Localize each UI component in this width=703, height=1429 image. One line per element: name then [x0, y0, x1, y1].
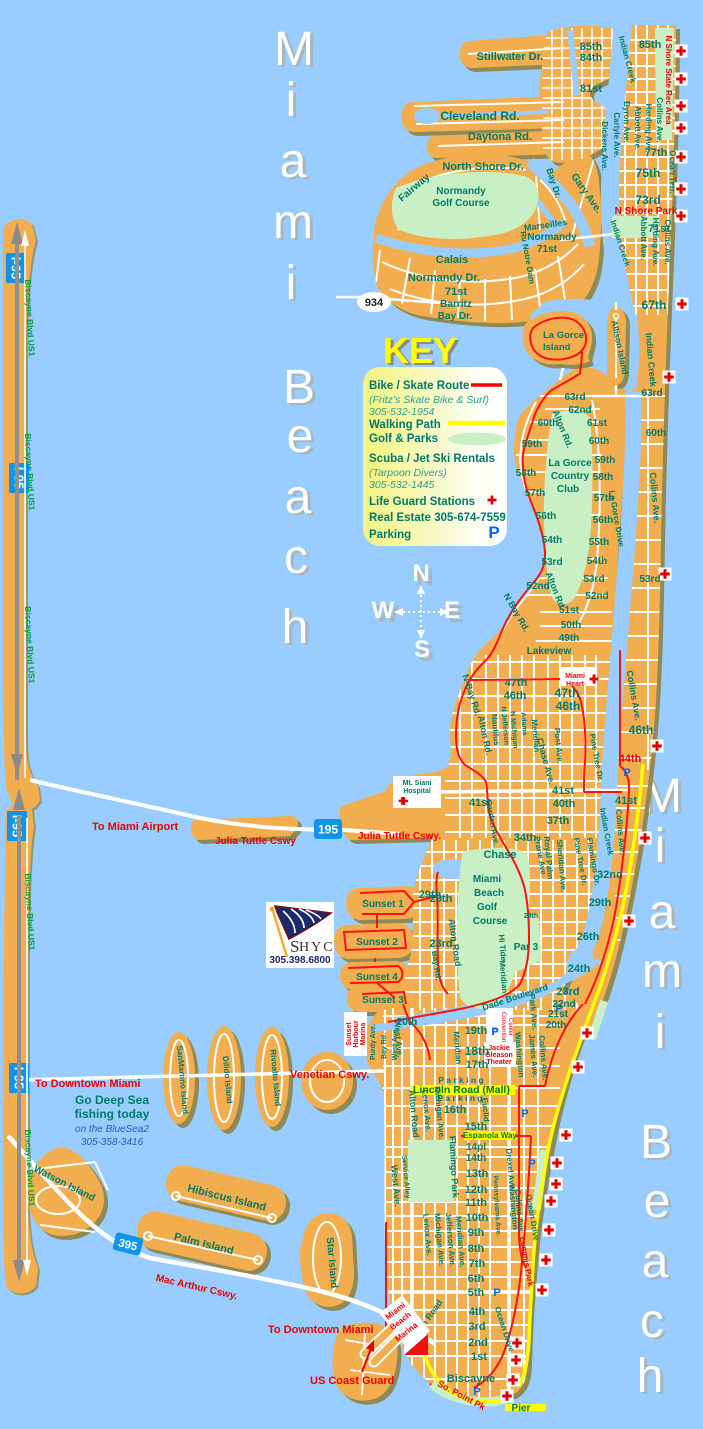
svg-text:h: h: [637, 1350, 664, 1403]
svg-text:S: S: [290, 937, 299, 956]
svg-text:c: c: [640, 1295, 664, 1348]
svg-text:Real Estate 305-674-7559: Real Estate 305-674-7559: [369, 512, 506, 524]
svg-text:21st: 21st: [548, 1009, 569, 1020]
svg-text:Normandy Dr.: Normandy Dr.: [408, 272, 480, 284]
svg-text:P: P: [491, 1026, 498, 1038]
svg-text:4th: 4th: [469, 1306, 486, 1318]
svg-text:41st: 41st: [552, 785, 574, 797]
svg-text:24th: 24th: [568, 963, 591, 975]
svg-text:Mt. Siani: Mt. Siani: [403, 780, 432, 787]
svg-text:Collins Ave.: Collins Ave.: [655, 97, 664, 142]
svg-text:53rd: 53rd: [583, 574, 604, 585]
svg-text:m: m: [273, 196, 313, 249]
svg-text:7th: 7th: [469, 1258, 486, 1270]
svg-text:W: W: [372, 597, 395, 624]
svg-text:5th: 5th: [468, 1287, 485, 1299]
svg-text:54th: 54th: [542, 535, 563, 546]
svg-text:2nd: 2nd: [468, 1337, 488, 1349]
svg-text:59th: 59th: [595, 455, 616, 466]
svg-text:8th: 8th: [468, 1243, 485, 1255]
svg-text:56th: 56th: [536, 511, 557, 522]
svg-text:81st: 81st: [580, 83, 602, 95]
svg-text:Pier: Pier: [512, 1403, 531, 1414]
svg-text:Beach: Beach: [474, 888, 504, 899]
svg-text:85th: 85th: [639, 39, 662, 51]
svg-text:La Gorce: La Gorce: [543, 330, 584, 341]
svg-text:41st: 41st: [615, 795, 637, 807]
svg-text:Scuba / Jet Ski Rentals: Scuba / Jet Ski Rentals: [369, 453, 495, 465]
svg-text:11th: 11th: [465, 1197, 487, 1209]
svg-text:Normandy: Normandy: [436, 186, 486, 197]
svg-text:19th: 19th: [465, 1025, 488, 1037]
svg-text:B: B: [283, 361, 315, 414]
svg-text:63rd: 63rd: [564, 392, 585, 403]
svg-text:Abbott Ave.: Abbott Ave.: [639, 216, 648, 260]
svg-text:Barritz: Barritz: [440, 299, 472, 310]
svg-text:49th: 49th: [559, 633, 580, 644]
svg-text:37th: 37th: [547, 815, 570, 827]
svg-text:i: i: [286, 74, 297, 127]
svg-text:To Downtown Miami: To Downtown Miami: [268, 1324, 374, 1336]
svg-text:Julia Tuttle Cswy: Julia Tuttle Cswy: [215, 836, 296, 847]
svg-text:47th: 47th: [555, 686, 580, 700]
svg-text:c: c: [284, 531, 308, 584]
svg-text:71st: 71st: [445, 286, 467, 298]
svg-text:305-358-3416: 305-358-3416: [81, 1137, 144, 1148]
svg-text:Bay Dr.: Bay Dr.: [438, 311, 473, 322]
svg-text:50th: 50th: [561, 620, 582, 631]
svg-text:e: e: [287, 410, 314, 463]
svg-text:67th: 67th: [642, 298, 667, 312]
svg-text:a: a: [642, 1235, 669, 1288]
svg-text:e: e: [644, 1175, 671, 1228]
svg-text:P: P: [488, 523, 499, 542]
svg-text:Go Deep Sea: Go Deep Sea: [75, 1093, 149, 1107]
svg-text:Lakeview: Lakeview: [527, 646, 572, 657]
svg-text:Hospital: Hospital: [403, 788, 431, 795]
svg-text:Club: Club: [557, 484, 579, 495]
svg-text:Ocean Terr.: Ocean Terr.: [668, 150, 677, 193]
svg-text:Purdy Ave.: Purdy Ave.: [370, 1024, 377, 1060]
svg-text:934: 934: [365, 297, 384, 309]
svg-text:Stillwater Dr.: Stillwater Dr.: [477, 51, 544, 63]
svg-text:i: i: [286, 257, 297, 310]
svg-text:13th: 13th: [466, 1168, 489, 1180]
svg-text:71st: 71st: [537, 244, 558, 255]
svg-text:54th: 54th: [587, 556, 608, 567]
svg-text:52nd: 52nd: [585, 591, 608, 602]
svg-text:3rd: 3rd: [468, 1321, 485, 1333]
svg-text:P: P: [493, 1287, 500, 1299]
svg-text:P: P: [521, 1108, 528, 1120]
svg-text:Par 3: Par 3: [514, 942, 539, 953]
svg-text:a: a: [649, 886, 676, 939]
svg-text:53rd: 53rd: [639, 574, 660, 585]
svg-text:Byron Ave.: Byron Ave.: [622, 101, 631, 143]
svg-text:Harding Ave.: Harding Ave.: [651, 218, 660, 267]
svg-text:Normandy: Normandy: [527, 232, 577, 243]
svg-text:14th: 14th: [466, 1153, 487, 1164]
svg-text:Jackie: Jackie: [488, 1045, 510, 1052]
svg-text:46th: 46th: [629, 723, 654, 737]
svg-text:29th: 29th: [419, 889, 442, 901]
svg-text:12th: 12th: [465, 1184, 488, 1196]
svg-text:56th: 56th: [593, 515, 614, 526]
svg-text:Island: Island: [543, 342, 571, 353]
svg-text:Sunset: Sunset: [346, 1022, 353, 1046]
svg-text:Bike / Skate Route: Bike / Skate Route: [369, 380, 469, 392]
svg-text:Julia Tuttle Cswy.: Julia Tuttle Cswy.: [358, 831, 441, 842]
svg-text:Sunset 3: Sunset 3: [362, 995, 404, 1006]
svg-text:Dickens Ave.: Dickens Ave.: [600, 121, 609, 170]
svg-text:84th: 84th: [580, 52, 603, 64]
svg-text:23rd: 23rd: [429, 938, 452, 950]
svg-text:HYC: HYC: [299, 940, 335, 955]
svg-text:Miami: Miami: [565, 673, 585, 680]
svg-text:60th: 60th: [589, 436, 610, 447]
svg-text:52nd: 52nd: [526, 581, 549, 592]
svg-text:Convention: Convention: [500, 1012, 506, 1042]
svg-text:Espanola Way: Espanola Way: [463, 1131, 517, 1140]
svg-text:73rd: 73rd: [635, 193, 660, 207]
svg-text:P: P: [528, 1158, 535, 1170]
svg-text:195: 195: [318, 823, 338, 837]
svg-text:10th: 10th: [466, 1212, 489, 1224]
svg-text:17th: 17th: [466, 1059, 489, 1071]
svg-text:KEY: KEY: [383, 330, 457, 371]
svg-text:fishing today: fishing today: [75, 1107, 150, 1121]
svg-text:(Tarpoon Divers): (Tarpoon Divers): [369, 467, 447, 479]
svg-text:1st: 1st: [471, 1351, 487, 1363]
svg-text:9th: 9th: [468, 1227, 485, 1239]
svg-text:P a r k i n g: P a r k i n g: [437, 1093, 482, 1103]
svg-text:i: i: [655, 820, 666, 873]
svg-text:B: B: [640, 1116, 672, 1169]
svg-text:Collins Ave.: Collins Ave.: [663, 219, 672, 264]
svg-text:Venetian Cswy.: Venetian Cswy.: [290, 1069, 369, 1081]
svg-text:58th: 58th: [593, 472, 614, 483]
svg-text:Marina: Marina: [360, 1023, 367, 1046]
svg-text:18th: 18th: [465, 1044, 490, 1058]
svg-text:N: N: [412, 560, 429, 587]
svg-text:Center: Center: [507, 1018, 513, 1036]
svg-text:Walking Path: Walking Path: [369, 419, 441, 431]
svg-text:53rd: 53rd: [541, 557, 562, 568]
svg-text:Golf Course: Golf Course: [432, 198, 490, 209]
svg-text:58th: 58th: [516, 468, 537, 479]
svg-text:59th: 59th: [522, 439, 543, 450]
svg-text:Bay Rd.: Bay Rd.: [381, 1033, 388, 1059]
svg-text:Biscayne: Biscayne: [447, 1373, 495, 1385]
svg-text:Miami: Miami: [473, 874, 502, 885]
svg-text:Golf: Golf: [477, 902, 498, 913]
svg-text:Harbour: Harbour: [353, 1020, 360, 1048]
svg-text:57th: 57th: [525, 488, 546, 499]
svg-text:6th: 6th: [468, 1273, 485, 1285]
svg-text:Life Guard Stations: Life Guard Stations: [369, 496, 475, 508]
svg-text:Chase: Chase: [483, 849, 516, 861]
svg-text:E: E: [444, 597, 460, 624]
svg-text:Theater: Theater: [486, 1059, 512, 1066]
svg-text:(Fritz’s Skate Bike & Surf): (Fritz’s Skate Bike & Surf): [369, 394, 489, 406]
svg-text:29th: 29th: [589, 897, 612, 909]
svg-text:P: P: [623, 767, 630, 779]
svg-text:h: h: [282, 601, 309, 654]
svg-text:Sunset 2: Sunset 2: [356, 937, 398, 948]
svg-text:20th: 20th: [546, 1020, 567, 1031]
svg-text:Daytona Rd.: Daytona Rd.: [468, 131, 532, 143]
svg-text:US Coast Guard: US Coast Guard: [310, 1375, 394, 1387]
svg-text:Parking: Parking: [369, 529, 411, 541]
svg-text:Golf & Parks: Golf & Parks: [369, 433, 438, 445]
svg-text:305.398.6800: 305.398.6800: [269, 955, 331, 966]
svg-text:S: S: [414, 636, 430, 663]
svg-text:305-532-1954: 305-532-1954: [369, 406, 435, 418]
svg-text:Harding Ave.: Harding Ave.: [644, 104, 653, 153]
svg-text:75th: 75th: [636, 166, 661, 180]
svg-text:47th: 47th: [505, 677, 528, 689]
svg-text:i: i: [655, 1006, 666, 1059]
svg-text:North Shore Dr.: North Shore Dr.: [442, 161, 523, 173]
svg-text:a: a: [280, 135, 307, 188]
svg-text:46th: 46th: [556, 699, 581, 713]
svg-text:305-532-1445: 305-532-1445: [369, 479, 435, 491]
svg-text:Sunset 4: Sunset 4: [356, 972, 398, 983]
svg-text:62nd: 62nd: [568, 405, 591, 416]
svg-text:14pl: 14pl: [466, 1142, 486, 1153]
svg-text:M: M: [274, 23, 314, 76]
svg-text:26th: 26th: [577, 931, 600, 943]
svg-text:on the BlueSea2: on the BlueSea2: [75, 1124, 149, 1135]
svg-text:To Downtown Miami: To Downtown Miami: [35, 1078, 141, 1090]
svg-text:To Miami Airport: To Miami Airport: [92, 821, 179, 833]
svg-text:55th: 55th: [589, 537, 610, 548]
svg-text:40th: 40th: [553, 798, 576, 810]
svg-text:La Gorce: La Gorce: [548, 458, 592, 469]
svg-text:23rd: 23rd: [556, 986, 579, 998]
svg-text:Course: Course: [473, 916, 508, 927]
svg-text:Country: Country: [551, 471, 590, 482]
svg-text:Sunset 1: Sunset 1: [362, 899, 404, 910]
svg-text:46th: 46th: [504, 690, 527, 702]
svg-text:60th: 60th: [646, 428, 667, 439]
svg-text:61st: 61st: [587, 418, 608, 429]
svg-text:28th: 28th: [524, 913, 538, 920]
svg-text:Abbott Ave.: Abbott Ave.: [633, 106, 642, 150]
svg-text:N Shore State Rec Area: N Shore State Rec Area: [664, 35, 673, 125]
svg-text:Carlyle Ave.: Carlyle Ave.: [612, 112, 621, 157]
svg-text:m: m: [642, 945, 682, 998]
svg-text:Heart: Heart: [566, 681, 585, 688]
svg-text:16th: 16th: [444, 1104, 467, 1116]
svg-text:Cleveland Rd.: Cleveland Rd.: [440, 109, 519, 123]
svg-text:a: a: [285, 471, 312, 524]
svg-text:Calais: Calais: [436, 254, 468, 266]
svg-text:44th: 44th: [619, 753, 642, 765]
svg-text:63rd: 63rd: [641, 388, 662, 399]
